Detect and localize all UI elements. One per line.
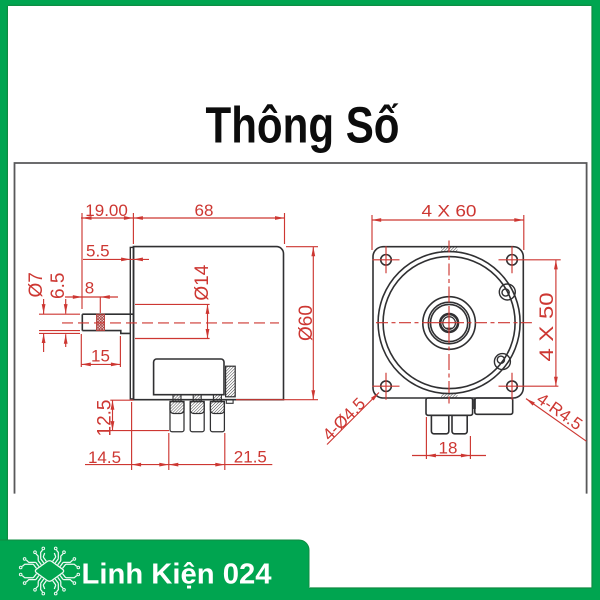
svg-text:4 X 60: 4 X 60 [422, 201, 477, 220]
svg-text:14.5: 14.5 [88, 448, 121, 467]
svg-text:Ø7: Ø7 [26, 272, 47, 297]
svg-text:6.5: 6.5 [48, 273, 69, 299]
svg-text:18: 18 [439, 439, 458, 458]
svg-text:8: 8 [85, 279, 94, 298]
svg-text:4 X 50: 4 X 50 [537, 293, 558, 362]
svg-text:Thông Số: Thông Số [206, 96, 400, 153]
svg-text:21.5: 21.5 [234, 448, 267, 467]
svg-text:Ø60: Ø60 [296, 305, 317, 341]
svg-text:15: 15 [91, 347, 110, 366]
svg-text:5.5: 5.5 [86, 241, 110, 260]
svg-text:12.5: 12.5 [95, 400, 116, 437]
svg-text:Ø14: Ø14 [192, 264, 213, 300]
svg-text:68: 68 [195, 201, 214, 220]
svg-text:19.00: 19.00 [85, 201, 128, 220]
svg-text:Linh Kiện 024: Linh Kiện 024 [82, 558, 272, 590]
